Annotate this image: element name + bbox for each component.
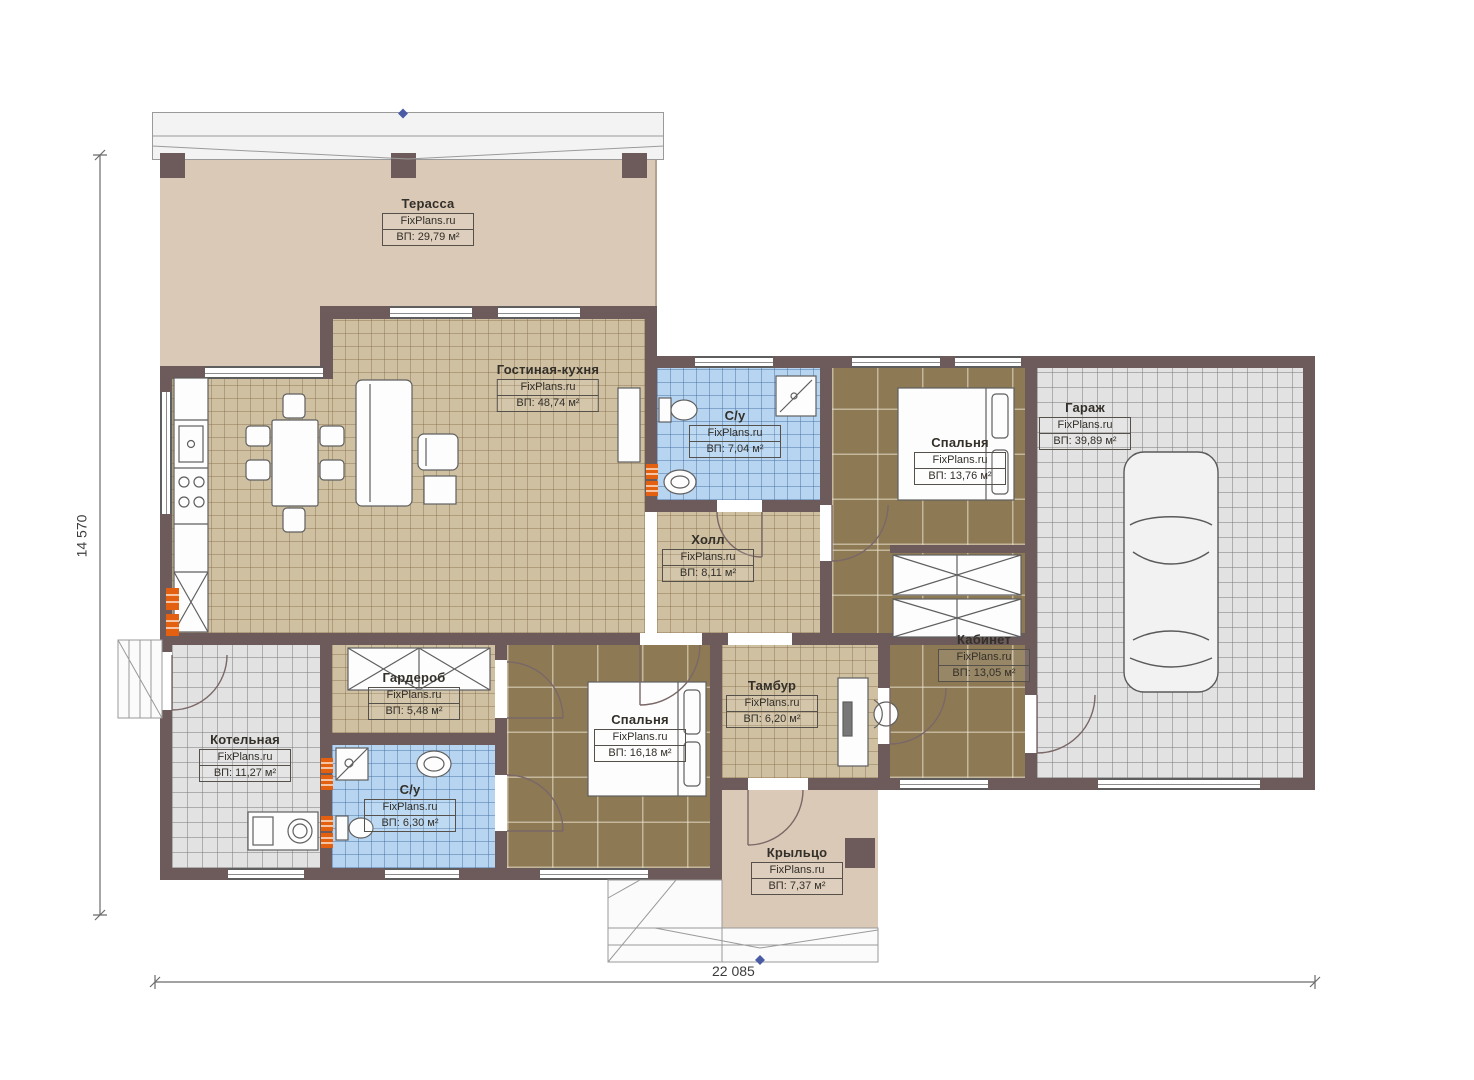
room-area: ВП: 7,04 м² bbox=[689, 442, 781, 458]
room-label-bath2: С/у FixPlans.ru ВП: 6,30 м² bbox=[364, 782, 456, 832]
room-area: ВП: 16,18 м² bbox=[594, 746, 686, 762]
room-area: ВП: 13,76 м² bbox=[914, 469, 1006, 485]
room-label-terrace: Терасса FixPlans.ru ВП: 29,79 м² bbox=[382, 196, 474, 246]
room-area: ВП: 6,20 м² bbox=[726, 712, 818, 728]
room-name: Гостиная-кухня bbox=[497, 362, 599, 377]
room-name: Кабинет bbox=[938, 632, 1030, 647]
room-area: ВП: 48,74 м² bbox=[497, 396, 599, 412]
room-name: Крыльцо bbox=[751, 845, 843, 860]
boiler-equipment bbox=[248, 812, 318, 850]
room-name: Спальня bbox=[914, 435, 1006, 450]
closets-bedroom1 bbox=[893, 555, 1021, 637]
watermark: FixPlans.ru bbox=[726, 695, 818, 712]
room-label-bath1: С/у FixPlans.ru ВП: 7,04 м² bbox=[689, 408, 781, 458]
watermark: FixPlans.ru bbox=[662, 549, 754, 566]
dining-table bbox=[246, 394, 344, 532]
watermark: FixPlans.ru bbox=[751, 862, 843, 879]
watermark: FixPlans.ru bbox=[199, 749, 291, 766]
watermark: FixPlans.ru bbox=[382, 213, 474, 230]
room-label-wardrobe: Гардероб FixPlans.ru ВП: 5,48 м² bbox=[368, 670, 460, 720]
watermark: FixPlans.ru bbox=[1039, 417, 1131, 434]
room-area: ВП: 5,48 м² bbox=[368, 704, 460, 720]
entry-steps bbox=[118, 640, 162, 718]
kitchen-counter bbox=[174, 378, 208, 632]
room-name: Тамбур bbox=[726, 678, 818, 693]
roof-lines bbox=[152, 136, 664, 159]
room-name: Холл bbox=[662, 532, 754, 547]
watermark: FixPlans.ru bbox=[689, 425, 781, 442]
room-area: ВП: 39,89 м² bbox=[1039, 434, 1131, 450]
office-desk bbox=[838, 678, 898, 766]
room-name: С/у bbox=[689, 408, 781, 423]
room-area: ВП: 29,79 м² bbox=[382, 230, 474, 246]
watermark: FixPlans.ru bbox=[914, 452, 1006, 469]
room-area: ВП: 13,05 м² bbox=[938, 666, 1030, 682]
watermark: FixPlans.ru bbox=[368, 687, 460, 704]
room-name: Гараж bbox=[1039, 400, 1131, 415]
room-label-hall: Холл FixPlans.ru ВП: 8,11 м² bbox=[662, 532, 754, 582]
room-area: ВП: 7,37 м² bbox=[751, 879, 843, 895]
dimension-height-label: 14 570 bbox=[73, 515, 89, 558]
room-area: ВП: 8,11 м² bbox=[662, 566, 754, 582]
room-name: С/у bbox=[364, 782, 456, 797]
watermark: FixPlans.ru bbox=[938, 649, 1030, 666]
room-name: Терасса bbox=[382, 196, 474, 211]
hall-cabinet bbox=[618, 388, 640, 462]
room-label-boiler: Котельная FixPlans.ru ВП: 11,27 м² bbox=[199, 732, 291, 782]
watermark: FixPlans.ru bbox=[497, 379, 599, 396]
room-label-porch: Крыльцо FixPlans.ru ВП: 7,37 м² bbox=[751, 845, 843, 895]
room-area: ВП: 11,27 м² bbox=[199, 766, 291, 782]
watermark: FixPlans.ru bbox=[594, 729, 686, 746]
room-label-garage: Гараж FixPlans.ru ВП: 39,89 м² bbox=[1039, 400, 1131, 450]
room-name: Котельная bbox=[199, 732, 291, 747]
room-label-bedroom2: Спальня FixPlans.ru ВП: 16,18 м² bbox=[594, 712, 686, 762]
room-label-living: Гостиная-кухня FixPlans.ru ВП: 48,74 м² bbox=[497, 362, 599, 412]
room-label-tambour: Тамбур FixPlans.ru ВП: 6,20 м² bbox=[726, 678, 818, 728]
room-name: Гардероб bbox=[368, 670, 460, 685]
room-label-bedroom1: Спальня FixPlans.ru ВП: 13,76 м² bbox=[914, 435, 1006, 485]
watermark: FixPlans.ru bbox=[364, 799, 456, 816]
room-area: ВП: 6,30 м² bbox=[364, 816, 456, 832]
dimension-left bbox=[93, 150, 107, 920]
room-name: Спальня bbox=[594, 712, 686, 727]
room-label-office: Кабинет FixPlans.ru ВП: 13,05 м² bbox=[938, 632, 1030, 682]
sofa bbox=[356, 380, 458, 506]
car bbox=[1124, 452, 1218, 692]
dimension-width-label: 22 085 bbox=[712, 963, 755, 979]
floor-plan: Терасса FixPlans.ru ВП: 29,79 м² Гостина… bbox=[0, 0, 1474, 1080]
